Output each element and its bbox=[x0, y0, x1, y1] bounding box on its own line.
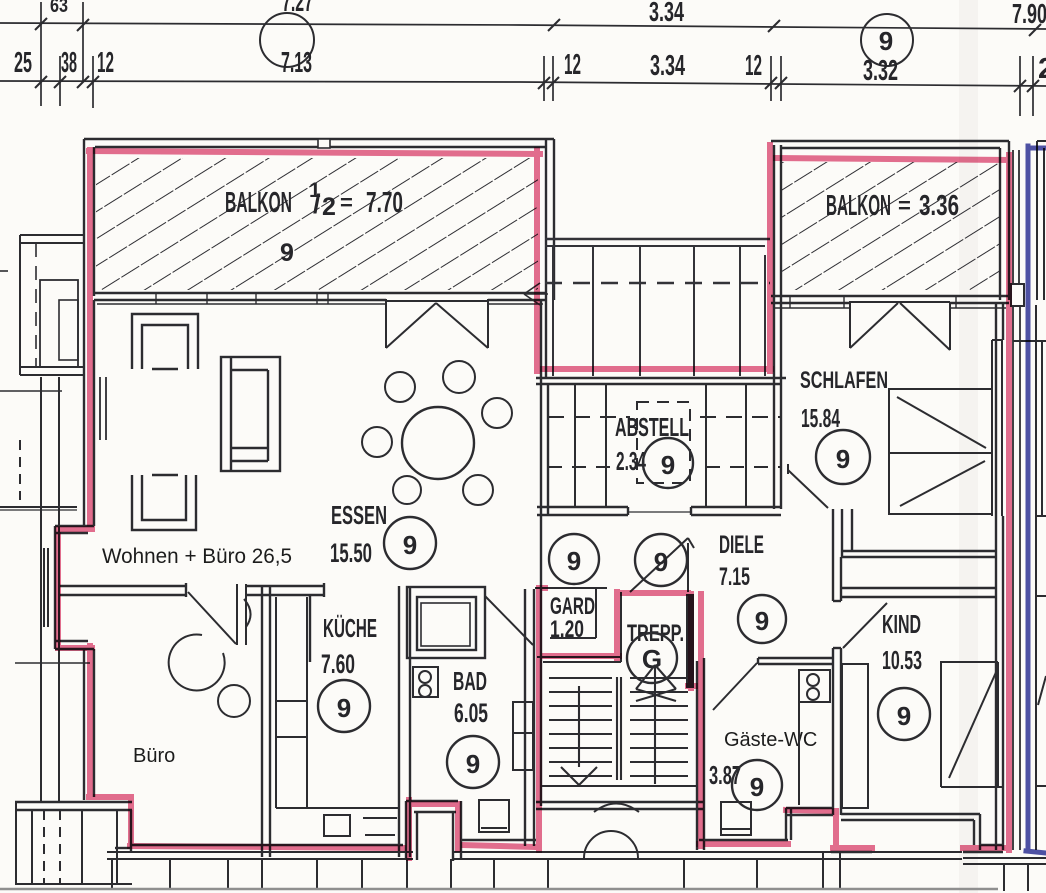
svg-text:12: 12 bbox=[745, 50, 762, 82]
svg-text:9: 9 bbox=[897, 701, 911, 731]
svg-text:9: 9 bbox=[755, 606, 769, 636]
svg-text:38: 38 bbox=[61, 47, 77, 79]
svg-text:1.20: 1.20 bbox=[550, 616, 584, 643]
svg-text:3.34: 3.34 bbox=[649, 0, 684, 27]
svg-text:SCHLAFEN: SCHLAFEN bbox=[800, 367, 888, 394]
svg-text:BALKON: BALKON bbox=[826, 190, 891, 222]
svg-text:7.15: 7.15 bbox=[719, 563, 750, 591]
svg-text:25: 25 bbox=[14, 47, 32, 79]
svg-text:10.53: 10.53 bbox=[882, 645, 922, 675]
svg-text:6.05: 6.05 bbox=[454, 698, 488, 728]
svg-text:7.60: 7.60 bbox=[321, 649, 355, 679]
svg-text:9: 9 bbox=[567, 546, 581, 576]
svg-text:12: 12 bbox=[97, 47, 114, 79]
svg-text:BALKON: BALKON bbox=[225, 187, 292, 219]
svg-text:3.87: 3.87 bbox=[709, 760, 741, 790]
svg-text:9: 9 bbox=[654, 547, 668, 577]
svg-text:7.27: 7.27 bbox=[282, 0, 313, 17]
svg-text:Büro: Büro bbox=[133, 745, 175, 767]
svg-text:9: 9 bbox=[750, 772, 764, 802]
svg-text:/: / bbox=[313, 189, 321, 219]
svg-text:9: 9 bbox=[836, 444, 850, 474]
svg-text:KÜCHE: KÜCHE bbox=[323, 613, 377, 643]
svg-text:=: = bbox=[898, 193, 911, 218]
svg-text:2: 2 bbox=[322, 193, 336, 221]
svg-text:9: 9 bbox=[280, 239, 294, 267]
svg-text:ESSEN: ESSEN bbox=[331, 500, 387, 530]
svg-text:15.50: 15.50 bbox=[330, 538, 372, 568]
svg-text:DIELE: DIELE bbox=[719, 531, 764, 559]
svg-text:BAD: BAD bbox=[453, 666, 487, 696]
svg-text:9: 9 bbox=[661, 450, 675, 480]
svg-text:=: = bbox=[340, 190, 353, 215]
svg-text:9: 9 bbox=[879, 26, 893, 56]
svg-text:2: 2 bbox=[1038, 53, 1046, 85]
svg-text:Gäste-WC: Gäste-WC bbox=[724, 729, 817, 751]
svg-text:7.70: 7.70 bbox=[366, 187, 403, 219]
svg-text:9: 9 bbox=[337, 693, 351, 723]
svg-text:ABSTELL: ABSTELL bbox=[615, 412, 689, 442]
svg-text:3.32: 3.32 bbox=[863, 55, 898, 87]
svg-text:7.13: 7.13 bbox=[281, 47, 312, 79]
svg-text:3.34: 3.34 bbox=[650, 50, 685, 82]
svg-text:KIND: KIND bbox=[882, 609, 921, 639]
svg-text:3.36: 3.36 bbox=[919, 190, 959, 222]
svg-text:12: 12 bbox=[564, 49, 581, 81]
svg-text:15.84: 15.84 bbox=[801, 403, 840, 433]
svg-text:9: 9 bbox=[403, 530, 417, 560]
svg-text:2.34: 2.34 bbox=[616, 446, 646, 476]
svg-text:9: 9 bbox=[466, 749, 480, 779]
svg-text:Wohnen + Büro 26,5: Wohnen + Büro 26,5 bbox=[102, 545, 292, 568]
svg-text:63: 63 bbox=[50, 0, 68, 17]
svg-text:7.90: 7.90 bbox=[1012, 0, 1046, 29]
